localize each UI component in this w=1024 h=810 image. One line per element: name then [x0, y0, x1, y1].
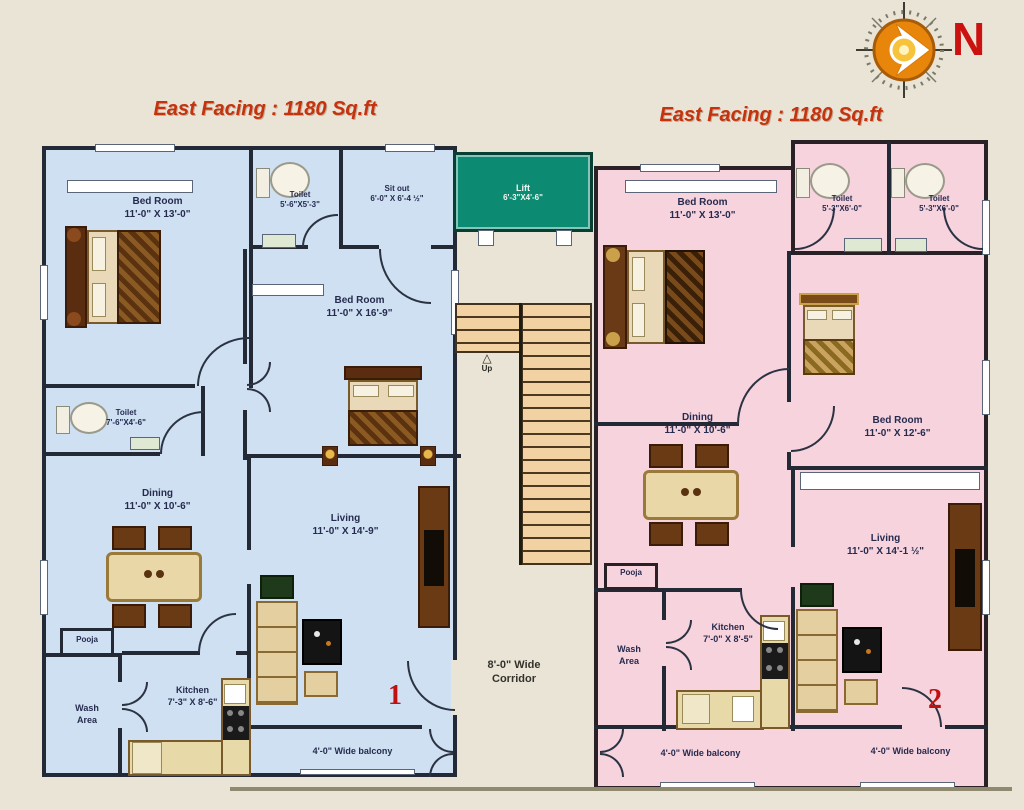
washbasin-icon	[844, 238, 882, 252]
room-label-bedroom1-u1: Bed Room11'-0" X 13'-0"	[90, 195, 225, 221]
lift-label: Lift	[516, 183, 530, 193]
dining-table-icon	[106, 526, 202, 628]
window	[385, 144, 435, 152]
wardrobe	[625, 180, 777, 193]
lift-door-jamb	[478, 230, 494, 246]
room-label-bedroom2-u2: Bed Room11'-0" X 12'-6"	[830, 414, 965, 440]
bed-icon	[65, 226, 165, 328]
sofa-icon	[796, 583, 888, 713]
up-arrow-icon: △	[474, 352, 500, 364]
wall	[42, 384, 195, 388]
window	[982, 360, 990, 415]
wall	[42, 452, 160, 456]
wall	[251, 725, 422, 729]
window	[95, 144, 175, 152]
lift-door-jamb	[556, 230, 572, 246]
washbasin-icon	[895, 238, 927, 252]
bed-icon	[799, 293, 859, 383]
room-label-toilet1-u1: Toilet5'-6"X5'-3"	[262, 190, 338, 211]
plant-icon	[260, 575, 294, 599]
window	[300, 769, 415, 775]
wall	[247, 454, 251, 550]
floor-plan-canvas: East Facing : 1180 Sq.ft East Facing : 1…	[0, 0, 1024, 810]
window	[640, 164, 720, 172]
ground-line	[230, 787, 1012, 791]
room-label-kitchen-u1: Kitchen7'-3" X 8'-6"	[130, 685, 255, 708]
room-label-living-u1: Living11'-0" X 14'-9"	[278, 512, 413, 538]
room-label-toilet1-u2: Toilet5'-3"X6'-0"	[806, 194, 878, 215]
room-label-bedroom2-u1: Bed Room11'-0" X 16'-9"	[292, 294, 427, 320]
wall	[791, 587, 795, 731]
washbasin-icon	[130, 437, 160, 450]
window	[40, 560, 48, 615]
plan-title-right: East Facing : 1180 Sq.ft	[646, 104, 896, 127]
room-label-wash-u2: WashArea	[598, 644, 660, 667]
room-label-dining-u2: Dining11'-0" X 10'-6"	[630, 411, 765, 437]
compass-north-label: N	[952, 12, 985, 66]
wall	[249, 146, 253, 388]
sofa-icon	[256, 575, 348, 705]
wall	[791, 470, 795, 547]
room-label-wash-u1: WashArea	[56, 703, 118, 726]
room-label-kitchen-u2: Kitchen7'-0" X 8'-5"	[668, 622, 788, 645]
kitchen-counter	[676, 690, 764, 730]
unit2-number: 2	[928, 684, 942, 716]
room-label-living-u2: Living11'-0" X 14'-1 ½"	[818, 532, 953, 558]
unit1-number: 1	[388, 680, 402, 712]
corridor-label: 8'-0" WideCorridor	[458, 658, 570, 687]
balcony-label2-u2: 4'-0" Wide balcony	[838, 746, 983, 758]
washbasin-icon	[262, 234, 296, 248]
room-label-dining-u1: Dining11'-0" X 10'-6"	[90, 487, 225, 513]
wardrobe	[800, 472, 980, 490]
window	[982, 200, 990, 255]
room-label-pooja-u2: Pooja	[606, 568, 656, 578]
bed-icon	[603, 245, 705, 349]
stairs-main-flight	[521, 303, 592, 565]
balcony-label1-u2: 4'-0" Wide balcony	[628, 748, 773, 760]
wall	[122, 651, 200, 655]
plant-icon	[800, 583, 834, 607]
dining-table-icon	[643, 444, 739, 546]
plan-title-left: East Facing : 1180 Sq.ft	[140, 98, 390, 121]
balcony-label-u1: 4'-0" Wide balcony	[280, 746, 425, 758]
room-label-pooja-u1: Pooja	[62, 635, 112, 645]
compass-icon	[856, 2, 952, 98]
room-label-toilet2-u2: Toilet5'-3"X6'-0"	[903, 194, 975, 215]
lift: Lift 6'-3"X4'-6"	[453, 152, 593, 232]
wall	[431, 245, 457, 249]
wall	[787, 466, 988, 470]
wall	[339, 146, 343, 249]
room-label-toilet2-u1: Toilet7'-6"X4'-6"	[88, 408, 164, 429]
bed-icon	[336, 366, 430, 470]
wall	[339, 245, 379, 249]
wardrobe	[67, 180, 193, 193]
tv-unit-icon	[418, 486, 450, 628]
room-label-bedroom1-u2: Bed Room11'-0" X 13'-0"	[635, 196, 770, 222]
window	[982, 560, 990, 615]
stairs-divider	[519, 303, 522, 565]
window	[40, 265, 48, 320]
room-label-sitout-u1: Sit out6'-0" X 6'-4 ½"	[352, 184, 442, 205]
tv-unit-icon	[948, 503, 982, 651]
wall	[236, 651, 251, 655]
up-label: Up	[474, 364, 500, 373]
stairs-up-marker: △ Up	[474, 352, 500, 386]
sink-icon	[732, 696, 754, 722]
wall	[945, 725, 988, 729]
lift-dim: 6'-3"X4'-6"	[503, 193, 543, 202]
